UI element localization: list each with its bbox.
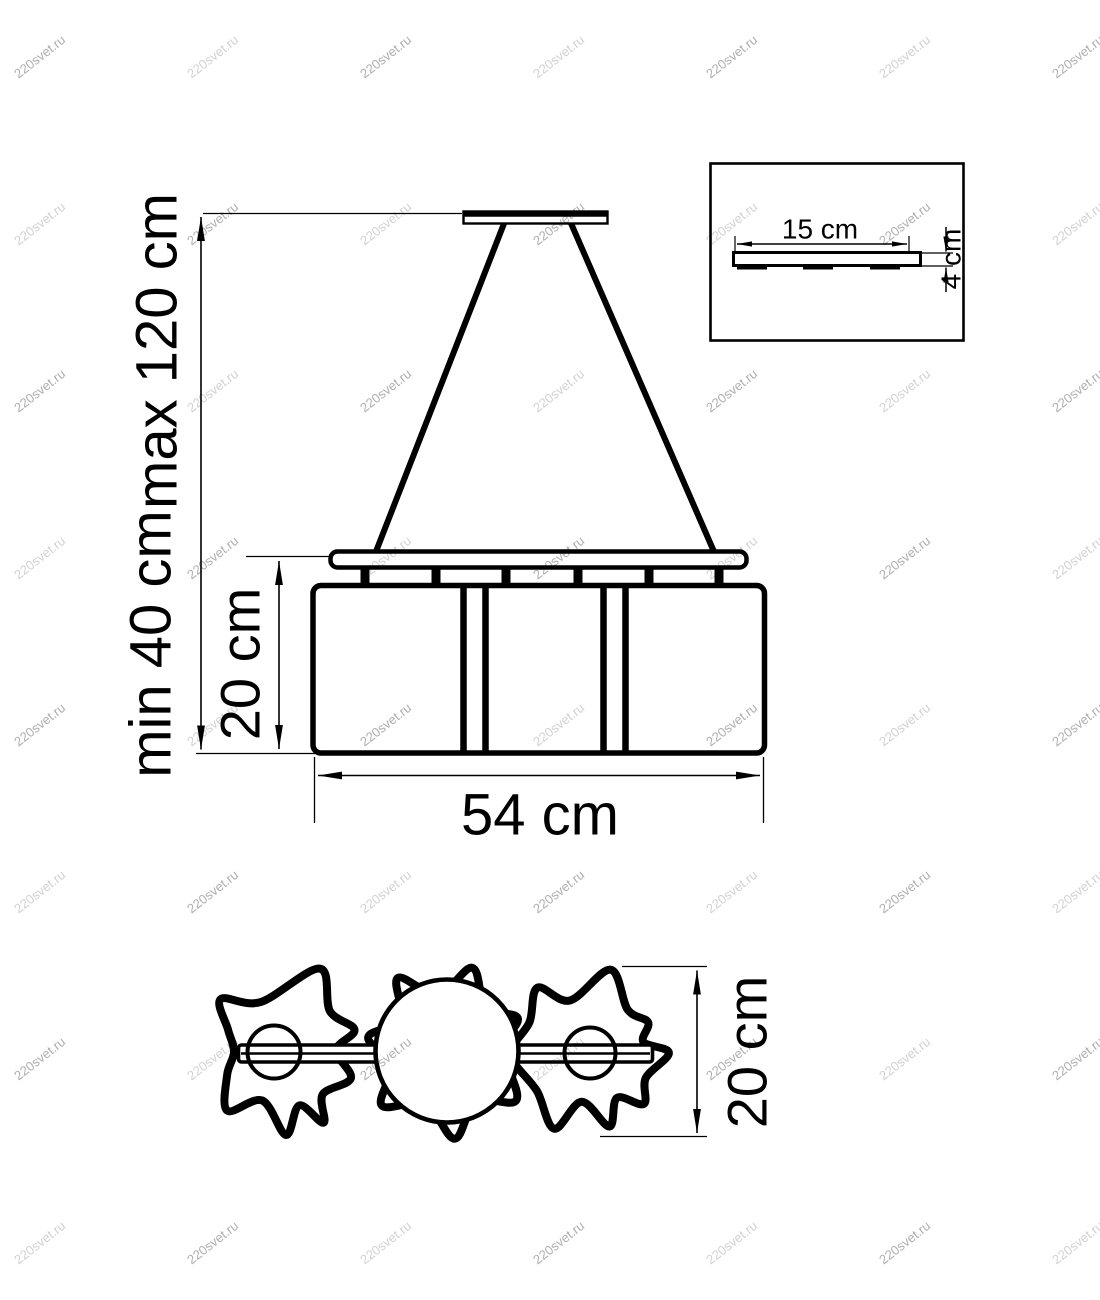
suspension-rod-left-icon: [375, 221, 505, 554]
dimension-label-shade-height: 20 cm: [209, 588, 272, 741]
canopy-feet: [737, 266, 900, 270]
dimension-drawing-page: max 120 cm min 40 cm 20 cm 54 cm 15 cm 4…: [0, 0, 1100, 1300]
lamp-shade-body: [313, 586, 765, 754]
technical-drawing: max 120 cm min 40 cm 20 cm 54 cm 15 cm 4…: [0, 0, 1100, 1300]
mounting-bar: [331, 552, 747, 568]
dimension-label-min-height: min 40 cm: [119, 510, 184, 778]
suspension-rod-right-icon: [570, 221, 715, 554]
canopy-side-view: [734, 253, 921, 266]
center-sphere: [376, 980, 519, 1123]
dimension-label-depth: 20 cm: [716, 976, 779, 1129]
dimension-label-width: 54 cm: [461, 783, 619, 848]
dimension-label-canopy-width: 15 cm: [782, 214, 858, 245]
dimension-label-canopy-height: 4 cm: [936, 229, 967, 290]
canopy-detail-inset: [711, 164, 964, 341]
dimension-label-max-height: max 120 cm: [125, 193, 190, 509]
front-view: [313, 212, 765, 754]
plan-view: [219, 968, 669, 1139]
